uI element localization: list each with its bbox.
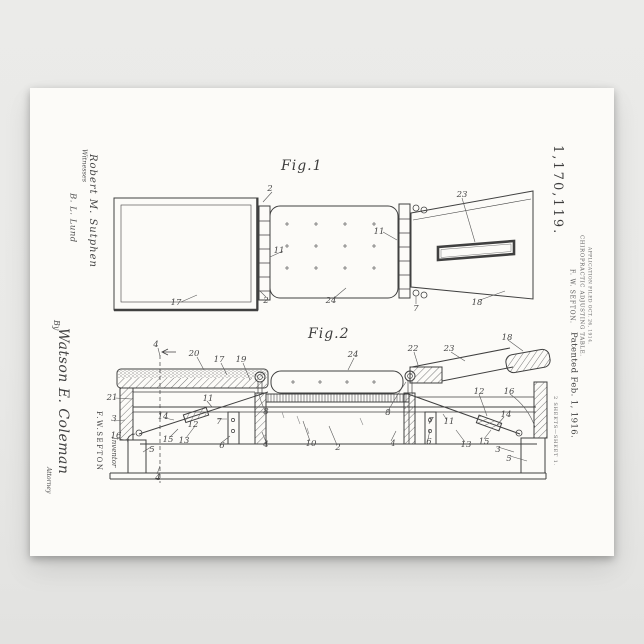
sheet-number-line: 2 SHEETS—SHEET 1. <box>552 396 557 466</box>
witness-signature-1: Robert M. Sutphen <box>87 154 97 268</box>
patent-number: 1,170,119. <box>551 145 564 235</box>
patented-date-line: Patented Feb. 1, 1916. <box>569 332 578 438</box>
fig1-drawing <box>114 191 533 310</box>
fig1-label: Fig.1 <box>281 158 323 174</box>
fig2-drawing <box>110 340 551 483</box>
witness-signature-2: B. L. Lund <box>68 193 77 243</box>
patent-drawing <box>0 0 644 644</box>
attorney-signature: Watson E. Coleman <box>56 328 70 474</box>
poster-mockup-scene: Fig.1 Fig.2 217211112423187 420171924222… <box>0 0 644 644</box>
fig2-label: Fig.2 <box>308 326 350 342</box>
attorney-label: Attorney <box>45 467 51 493</box>
inventor-label: Inventor <box>110 437 117 467</box>
inventor-name: F.W.SEFTON <box>95 411 102 471</box>
patent-application-line: APPLICATION FILED OCT. 26, 1914. <box>585 222 592 370</box>
